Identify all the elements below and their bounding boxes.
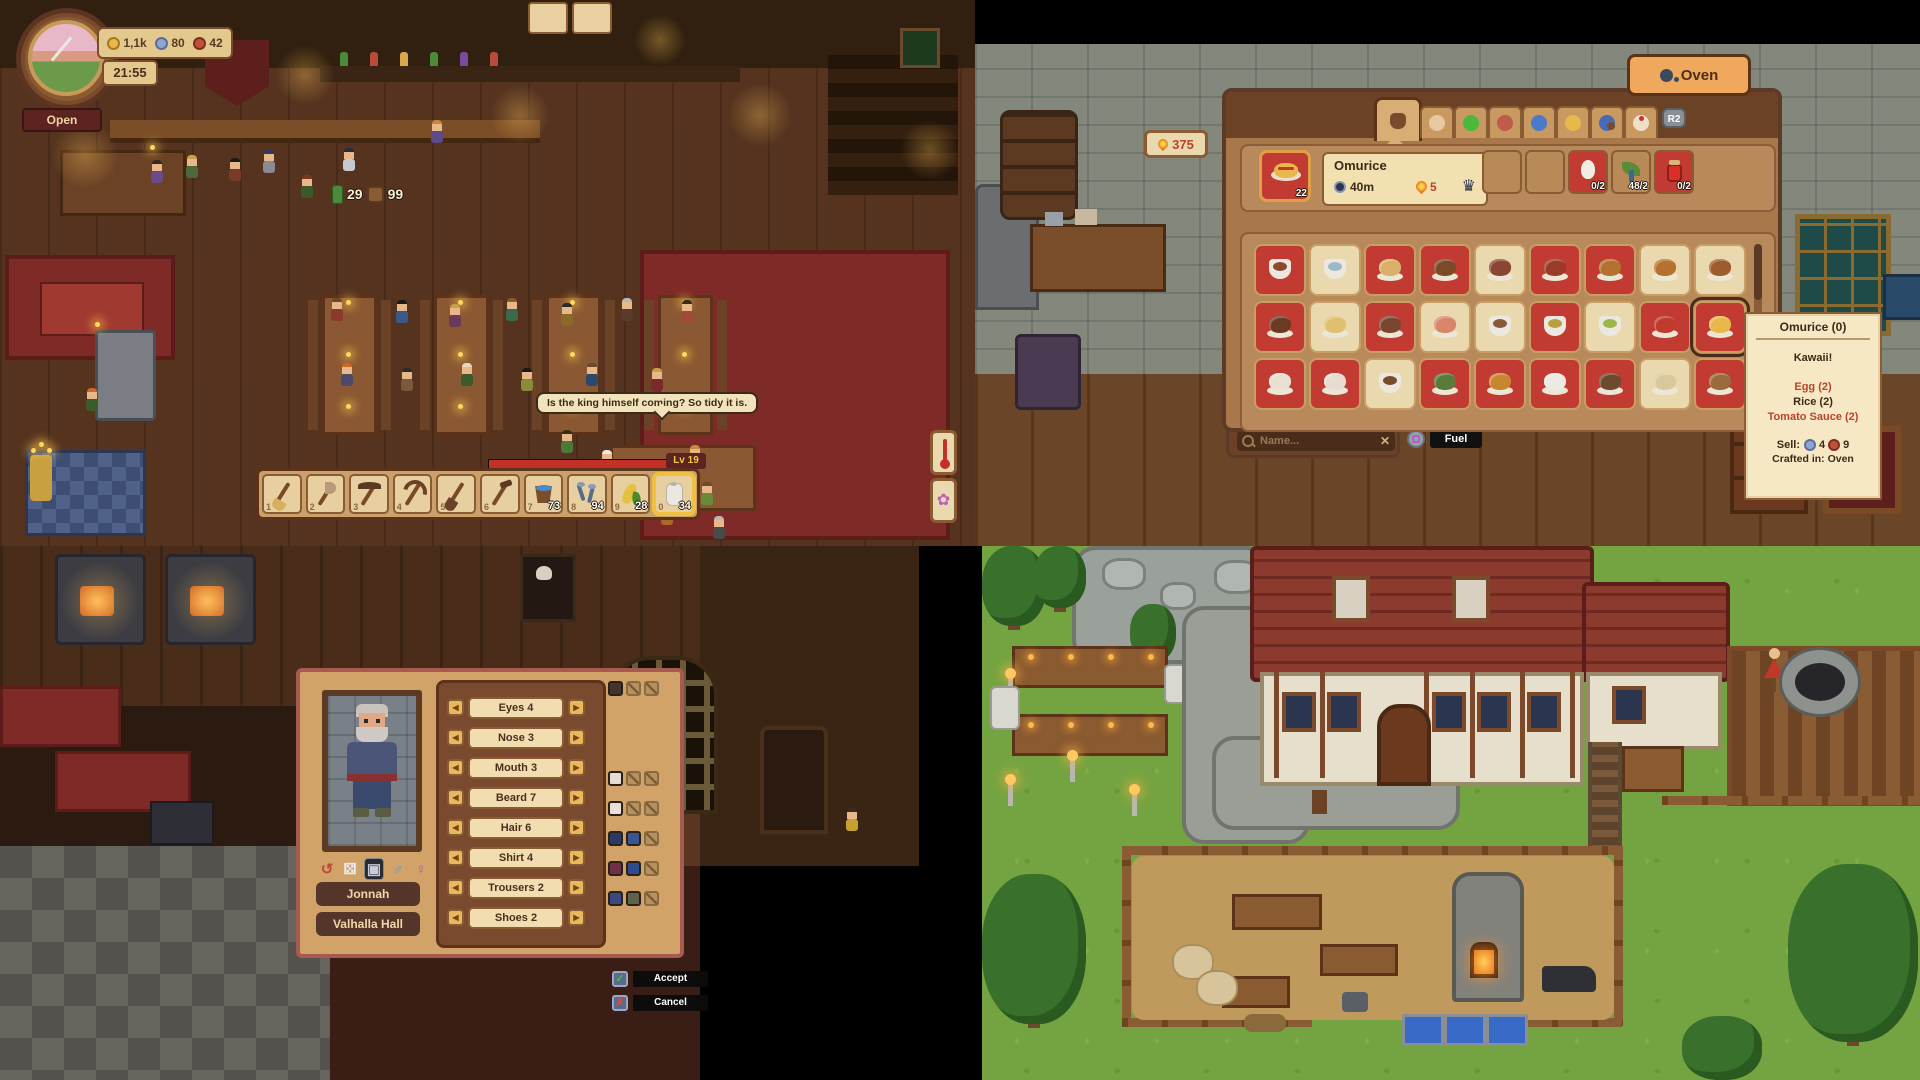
recipe-steak[interactable]: [1474, 244, 1526, 296]
shoe: [375, 808, 391, 817]
portrait-toggle-icon[interactable]: ▣: [364, 858, 384, 880]
barrel: [1000, 110, 1078, 220]
food: [1434, 316, 1456, 333]
cherry: [1639, 116, 1644, 121]
water-tub: [1486, 1014, 1528, 1046]
character-location-plate[interactable]: Valhalla Hall: [316, 912, 420, 936]
tab-soups[interactable]: [1590, 106, 1624, 138]
next-shirt[interactable]: ▶: [568, 849, 585, 866]
lamp-flame: [1028, 654, 1034, 660]
decor: [432, 124, 442, 131]
lamp-post: [1132, 792, 1137, 816]
stone-floor: [0, 846, 330, 1080]
hotbar-slot-1[interactable]: 1: [262, 474, 302, 514]
color-swatch[interactable]: [626, 861, 641, 876]
furnace-kiln: [1452, 872, 1524, 1002]
timber-beam: [1520, 672, 1525, 778]
recipe-goulash[interactable]: [1254, 244, 1306, 296]
lamp-flame: [1148, 654, 1154, 660]
accept-label: Accept: [633, 971, 708, 987]
lamp-flame: [1028, 722, 1034, 728]
npc: [460, 363, 474, 389]
decor: [521, 379, 533, 391]
nails-icon: [577, 482, 585, 487]
eye: [376, 719, 380, 723]
thermometer-icon: [943, 439, 947, 461]
lantern-glow: [728, 83, 792, 147]
thermometer-button[interactable]: [930, 430, 957, 475]
decor: [586, 374, 598, 386]
prev-nose[interactable]: ◀: [447, 729, 464, 746]
npc: [85, 388, 99, 414]
npc: [585, 363, 599, 389]
dormer-window: [1452, 576, 1490, 622]
bottle-icon: [430, 52, 438, 66]
coin-icon: [155, 37, 168, 50]
belt: [347, 774, 397, 781]
speech-bubble: Is the king himself coming? So tidy it i…: [536, 392, 758, 414]
lamp-head: [1005, 774, 1016, 785]
color-swatch[interactable]: [626, 891, 641, 906]
ingredient-slot-rice[interactable]: 48/2: [1611, 150, 1651, 194]
randomize-dice-icon[interactable]: ⚄: [341, 859, 359, 879]
flower-icon: ✿: [937, 492, 950, 509]
xp-fill: [489, 460, 667, 468]
food: [1599, 259, 1621, 276]
npc: [620, 298, 634, 324]
selected-recipe-slot[interactable]: 22: [1259, 150, 1311, 202]
ketchup: [1278, 167, 1294, 170]
decor: [332, 302, 342, 309]
candelabra: [30, 455, 52, 501]
decor: [681, 311, 693, 323]
npc: [448, 304, 462, 330]
capacity-current: 29: [347, 186, 363, 202]
food: [1709, 316, 1731, 333]
decor: [682, 304, 692, 311]
thermometer-bulb: [940, 459, 950, 469]
recipe-fries[interactable]: [1309, 301, 1361, 353]
tooltip-title: Omurice (0): [1746, 320, 1880, 334]
hotbar-slot-5[interactable]: 5: [436, 474, 476, 514]
tree-canopy: [982, 874, 1086, 1024]
candle-flame: [95, 322, 100, 327]
recipe-yellow-soup[interactable]: [1529, 301, 1581, 353]
prev-eyes[interactable]: ◀: [447, 699, 464, 716]
prev-trousers[interactable]: ◀: [447, 879, 464, 896]
tree-canopy: [1034, 546, 1086, 608]
tab-desserts[interactable]: [1624, 106, 1658, 138]
locked-swatch: [626, 801, 641, 816]
hotbar-slot-8[interactable]: 894: [567, 474, 607, 514]
bench: [308, 300, 318, 430]
press-machine: [1015, 334, 1081, 410]
decor: [86, 399, 98, 411]
prev-mouth[interactable]: ◀: [447, 759, 464, 776]
feature-hair: Hair 6: [468, 817, 564, 839]
lamp-head: [1129, 784, 1140, 795]
fuel-hint: Fuel: [1407, 430, 1482, 448]
decor: [344, 152, 354, 159]
food: [1434, 259, 1456, 276]
color-swatch[interactable]: [608, 801, 623, 816]
contents: [1548, 319, 1562, 328]
next-nose[interactable]: ▶: [568, 729, 585, 746]
bottle-icon: [332, 185, 343, 204]
recipe-tomato-bread[interactable]: [1419, 301, 1471, 353]
slot-count: 28: [635, 500, 647, 512]
candle-flame: [346, 352, 351, 357]
decor: [263, 161, 275, 173]
npc: [400, 368, 414, 394]
tab-cooking-pot[interactable]: [1374, 97, 1422, 141]
nails-icon: [588, 484, 596, 489]
decor: [587, 367, 597, 374]
contents: [1383, 376, 1397, 385]
next-mouth[interactable]: ▶: [568, 759, 585, 776]
decor: [431, 131, 443, 143]
decor: [561, 314, 573, 326]
decor: [396, 311, 408, 323]
food: [1269, 373, 1291, 390]
recipe-spring-roll[interactable]: [1364, 244, 1416, 296]
check-icon: ✓: [612, 971, 628, 987]
lamp-flame: [1108, 654, 1114, 660]
slot-count: 73: [548, 500, 560, 512]
male-symbol-icon[interactable]: ♂: [389, 859, 407, 879]
jar-lid: [1669, 160, 1680, 165]
coin-icon: [107, 37, 120, 50]
decor: [264, 154, 274, 161]
r2-shortcut-badge: R2: [1662, 108, 1686, 128]
work-table: [1030, 224, 1166, 292]
timber-beam: [1320, 672, 1325, 778]
next-beard[interactable]: ▶: [568, 789, 585, 806]
lantern-glow: [170, 561, 250, 641]
recipe-stir-fry[interactable]: [1584, 358, 1636, 410]
tool-box: [1342, 992, 1368, 1012]
hotbar-slot-6[interactable]: 6: [480, 474, 520, 514]
kitchen-scene: 375 Oven R2 22 Omurice 40m 5 ♛ 0/248: [975, 44, 1920, 546]
gamepad-square-icon: [1407, 430, 1425, 448]
bench: [420, 300, 430, 430]
reset-icon[interactable]: ↺: [318, 859, 336, 879]
basin: [990, 686, 1020, 730]
hotbar-slot-2[interactable]: 2: [306, 474, 346, 514]
food: [1379, 259, 1401, 276]
tab-pasta[interactable]: [1556, 106, 1590, 138]
female-symbol-icon[interactable]: ♀: [412, 859, 430, 879]
bottle-icon: [370, 52, 378, 66]
outdoor-table: [1012, 646, 1168, 688]
cross-icon: ✗: [612, 995, 628, 1011]
tab-meat[interactable]: [1488, 106, 1522, 138]
fence: [1122, 846, 1622, 855]
sign-table: [1622, 746, 1684, 792]
color-swatch[interactable]: [608, 831, 623, 846]
window: [1612, 686, 1646, 724]
decor: [302, 179, 312, 186]
lamp-post: [1008, 782, 1013, 806]
decor: [652, 372, 662, 379]
color-swatch[interactable]: [608, 681, 623, 696]
food: [1709, 259, 1731, 276]
locked-swatch: [644, 861, 659, 876]
darkness: [700, 862, 919, 1080]
cancel-button[interactable]: ✗ Cancel: [612, 994, 708, 1012]
next-eyes[interactable]: ▶: [568, 699, 585, 716]
character-name-plate[interactable]: Jonnah: [316, 882, 420, 906]
recipe-parfait[interactable]: [1309, 358, 1361, 410]
decor: [186, 166, 198, 178]
npc: [650, 368, 664, 394]
water-tub: [1444, 1014, 1486, 1046]
ingredient-count: 48/2: [1629, 181, 1648, 192]
flower-button[interactable]: ✿: [930, 478, 957, 523]
prev-shoes[interactable]: ◀: [447, 909, 464, 926]
tavern-scene: 1,1k8042 21:55 Open 29 99 Is the king hi…: [0, 0, 975, 546]
red-table: [0, 686, 121, 747]
recipe-pizza[interactable]: [1639, 358, 1691, 410]
fence: [1614, 846, 1623, 1026]
locked-swatch: [644, 831, 659, 846]
ingredient-slot-empty-1[interactable]: [1525, 150, 1565, 194]
npc: [262, 150, 276, 176]
color-swatch[interactable]: [608, 771, 623, 786]
anvil-bench: [150, 801, 214, 845]
recipe-cream-dish[interactable]: [1254, 358, 1306, 410]
hall-scene: ↺⚄▣♂♀ Jonnah Valhalla Hall ◀Eyes 4▶◀Nose…: [0, 546, 919, 1080]
search-field[interactable]: ✕: [1237, 431, 1395, 451]
outdoor-table: [1012, 714, 1168, 756]
eye: [364, 719, 368, 723]
time-icon: [1334, 181, 1346, 193]
recipe-stack-count: 22: [1296, 188, 1307, 199]
color-swatch[interactable]: [626, 831, 641, 846]
crafting-table: [1232, 894, 1322, 930]
scarecrow-head: [1769, 648, 1780, 659]
feature-mouth: Mouth 3: [468, 757, 564, 779]
beard: [356, 727, 388, 742]
hotbar-slot-0[interactable]: 034: [654, 474, 694, 514]
locked-swatch: [644, 801, 659, 816]
currency-gold-coin: 1,1k: [107, 36, 146, 50]
decor: [701, 493, 713, 505]
decor: [522, 372, 532, 379]
time-display: 21:55: [102, 60, 158, 86]
clock-face: [28, 20, 104, 96]
recipe-onigiri[interactable]: [1529, 358, 1581, 410]
decor: [462, 367, 472, 374]
locked-swatch: [644, 771, 659, 786]
cancel-label: Cancel: [633, 995, 708, 1011]
lamp-head: [1005, 668, 1016, 679]
house-roof: [1250, 546, 1594, 682]
decor: [507, 302, 517, 309]
ingredient-count: 0/2: [1591, 181, 1605, 192]
flame-icon: [1414, 179, 1430, 195]
hotbar-slot-3[interactable]: 3: [349, 474, 389, 514]
crafting-table: [1320, 944, 1398, 976]
candle-flame: [458, 404, 463, 409]
coin-icon: [1804, 439, 1816, 451]
farm-scene: [982, 546, 1920, 1080]
lamp-head: [1067, 750, 1078, 761]
recipe-corn-dog[interactable]: [1474, 358, 1526, 410]
slot-number: 9: [615, 502, 620, 512]
character-customization-dialog: ↺⚄▣♂♀ Jonnah Valhalla Hall ◀Eyes 4▶◀Nose…: [296, 668, 684, 958]
food-sign: [572, 2, 612, 34]
open-sign[interactable]: Open: [22, 108, 102, 132]
candle-flame: [31, 448, 36, 453]
broom-icon: [270, 497, 286, 512]
decor: [152, 164, 162, 171]
decor: [713, 527, 725, 539]
lamp-flame: [1148, 722, 1154, 728]
recipe-omurice[interactable]: [1694, 301, 1746, 353]
food: [1544, 259, 1566, 276]
feature-trousers: Trousers 2: [468, 877, 564, 899]
lantern-glow: [634, 14, 686, 66]
recipe-info-plate: Omurice 40m 5 ♛: [1322, 152, 1488, 206]
npc: [560, 430, 574, 456]
water-tub: [1402, 1014, 1444, 1046]
candle-flame: [39, 442, 44, 447]
bed-sign: [528, 2, 568, 34]
food: [1269, 316, 1291, 333]
recipe-bread-bun[interactable]: [1694, 244, 1746, 296]
search-bar: ✕: [1226, 428, 1400, 458]
accept-button[interactable]: ✓ Accept: [612, 970, 708, 988]
decor: [561, 441, 573, 453]
currency-copper-coin: 42: [193, 36, 222, 50]
fish-icon: [1531, 115, 1547, 131]
recipe-tea[interactable]: [1309, 244, 1361, 296]
tree-canopy: [1682, 1016, 1762, 1080]
food: [1599, 373, 1621, 390]
rug-motif: [40, 282, 144, 336]
locked-swatch: [626, 681, 641, 696]
decor: [229, 169, 241, 181]
soup-center: [1607, 122, 1615, 130]
hotbar-slot-4[interactable]: 4: [393, 474, 433, 514]
npc: [845, 808, 859, 834]
feature-shoes: Shoes 2: [468, 907, 564, 929]
recipe-brown-soup[interactable]: [1474, 301, 1526, 353]
locked-swatch: [644, 891, 659, 906]
fence: [1662, 796, 1920, 805]
trousers: [353, 781, 391, 809]
soups-icon: [1599, 115, 1615, 131]
clock-widget: [10, 6, 118, 114]
food: [1654, 316, 1676, 333]
slot-number: 7: [528, 502, 533, 512]
shelf: [320, 66, 740, 82]
sandbag: [1196, 970, 1238, 1006]
tower-display: [95, 330, 156, 421]
tab-vegetables[interactable]: [1454, 106, 1488, 138]
npc: [505, 298, 519, 324]
lantern-glow: [275, 45, 335, 105]
hotbar-slot-9[interactable]: 928: [611, 474, 651, 514]
npc: [395, 300, 409, 326]
tree-canopy: [1788, 864, 1918, 1042]
decor: [450, 308, 460, 315]
ingredient-slot-egg[interactable]: 0/2: [1568, 150, 1608, 194]
recipe-salad[interactable]: [1639, 301, 1691, 353]
next-hair[interactable]: ▶: [568, 819, 585, 836]
tab-tapas[interactable]: [1420, 106, 1454, 138]
recipe-sweet-potato[interactable]: [1364, 301, 1416, 353]
search-input[interactable]: [1258, 434, 1376, 448]
recipe-stew-bowl[interactable]: [1364, 358, 1416, 410]
next-trousers[interactable]: ▶: [568, 879, 585, 896]
ingredient-count: 0/2: [1677, 181, 1691, 192]
fence: [1122, 846, 1131, 1026]
locked-swatch: [644, 681, 659, 696]
house-door: [1377, 704, 1431, 786]
recipe-skewer[interactable]: [1419, 244, 1471, 296]
feature-eyes: Eyes 4: [468, 697, 564, 719]
crown-icon: ♛: [1462, 176, 1476, 196]
recipe-green-soup[interactable]: [1584, 301, 1636, 353]
next-shoes[interactable]: ▶: [568, 909, 585, 926]
recipe-meat-skewers[interactable]: [1254, 301, 1306, 353]
ingredient-slot-empty-0[interactable]: [1482, 150, 1522, 194]
color-swatch[interactable]: [608, 861, 623, 876]
scrollbar-thumb[interactable]: [1754, 244, 1762, 300]
bench: [381, 300, 391, 430]
npc: [680, 300, 694, 326]
color-swatch[interactable]: [608, 891, 623, 906]
bottle-icon: [400, 52, 408, 66]
tomato-sauce-icon: [1667, 164, 1682, 182]
recipe-sausage[interactable]: [1529, 244, 1581, 296]
timber-beam: [1470, 672, 1475, 778]
recipe-cheeseburger[interactable]: [1639, 244, 1691, 296]
dormer-window: [1332, 576, 1370, 622]
recipe-burger[interactable]: [1584, 244, 1636, 296]
slot-number: 3: [353, 502, 358, 512]
lamp-flame: [1108, 722, 1114, 728]
decor: [341, 374, 353, 386]
back-door: [760, 726, 828, 834]
omelette: [1274, 163, 1298, 178]
timber-beam: [1570, 672, 1575, 778]
food: [1489, 373, 1511, 390]
recipe-meat-salad[interactable]: [1419, 358, 1471, 410]
fuel-amount: 375: [1172, 137, 1194, 152]
hotbar-slot-7[interactable]: 773: [524, 474, 564, 514]
decor: [230, 162, 240, 169]
lantern-glow: [900, 120, 960, 180]
prev-hair[interactable]: ◀: [447, 819, 464, 836]
slot-number: 4: [397, 502, 402, 512]
recipe-time: 40m: [1350, 180, 1374, 194]
prev-beard[interactable]: ◀: [447, 789, 464, 806]
prev-shirt[interactable]: ◀: [447, 849, 464, 866]
well: [1782, 650, 1858, 714]
tab-fish[interactable]: [1522, 106, 1556, 138]
sell-label: Sell:: [1777, 439, 1800, 451]
feature-nose: Nose 3: [468, 727, 564, 749]
hotbar: 123456773894928034: [256, 468, 700, 520]
clear-search-icon[interactable]: ✕: [1380, 434, 1390, 448]
recipe-meatloaf[interactable]: [1694, 358, 1746, 410]
ingredient-slot-tomato-sauce[interactable]: 0/2: [1654, 150, 1694, 194]
food: [1379, 316, 1401, 333]
decor: [846, 819, 858, 831]
